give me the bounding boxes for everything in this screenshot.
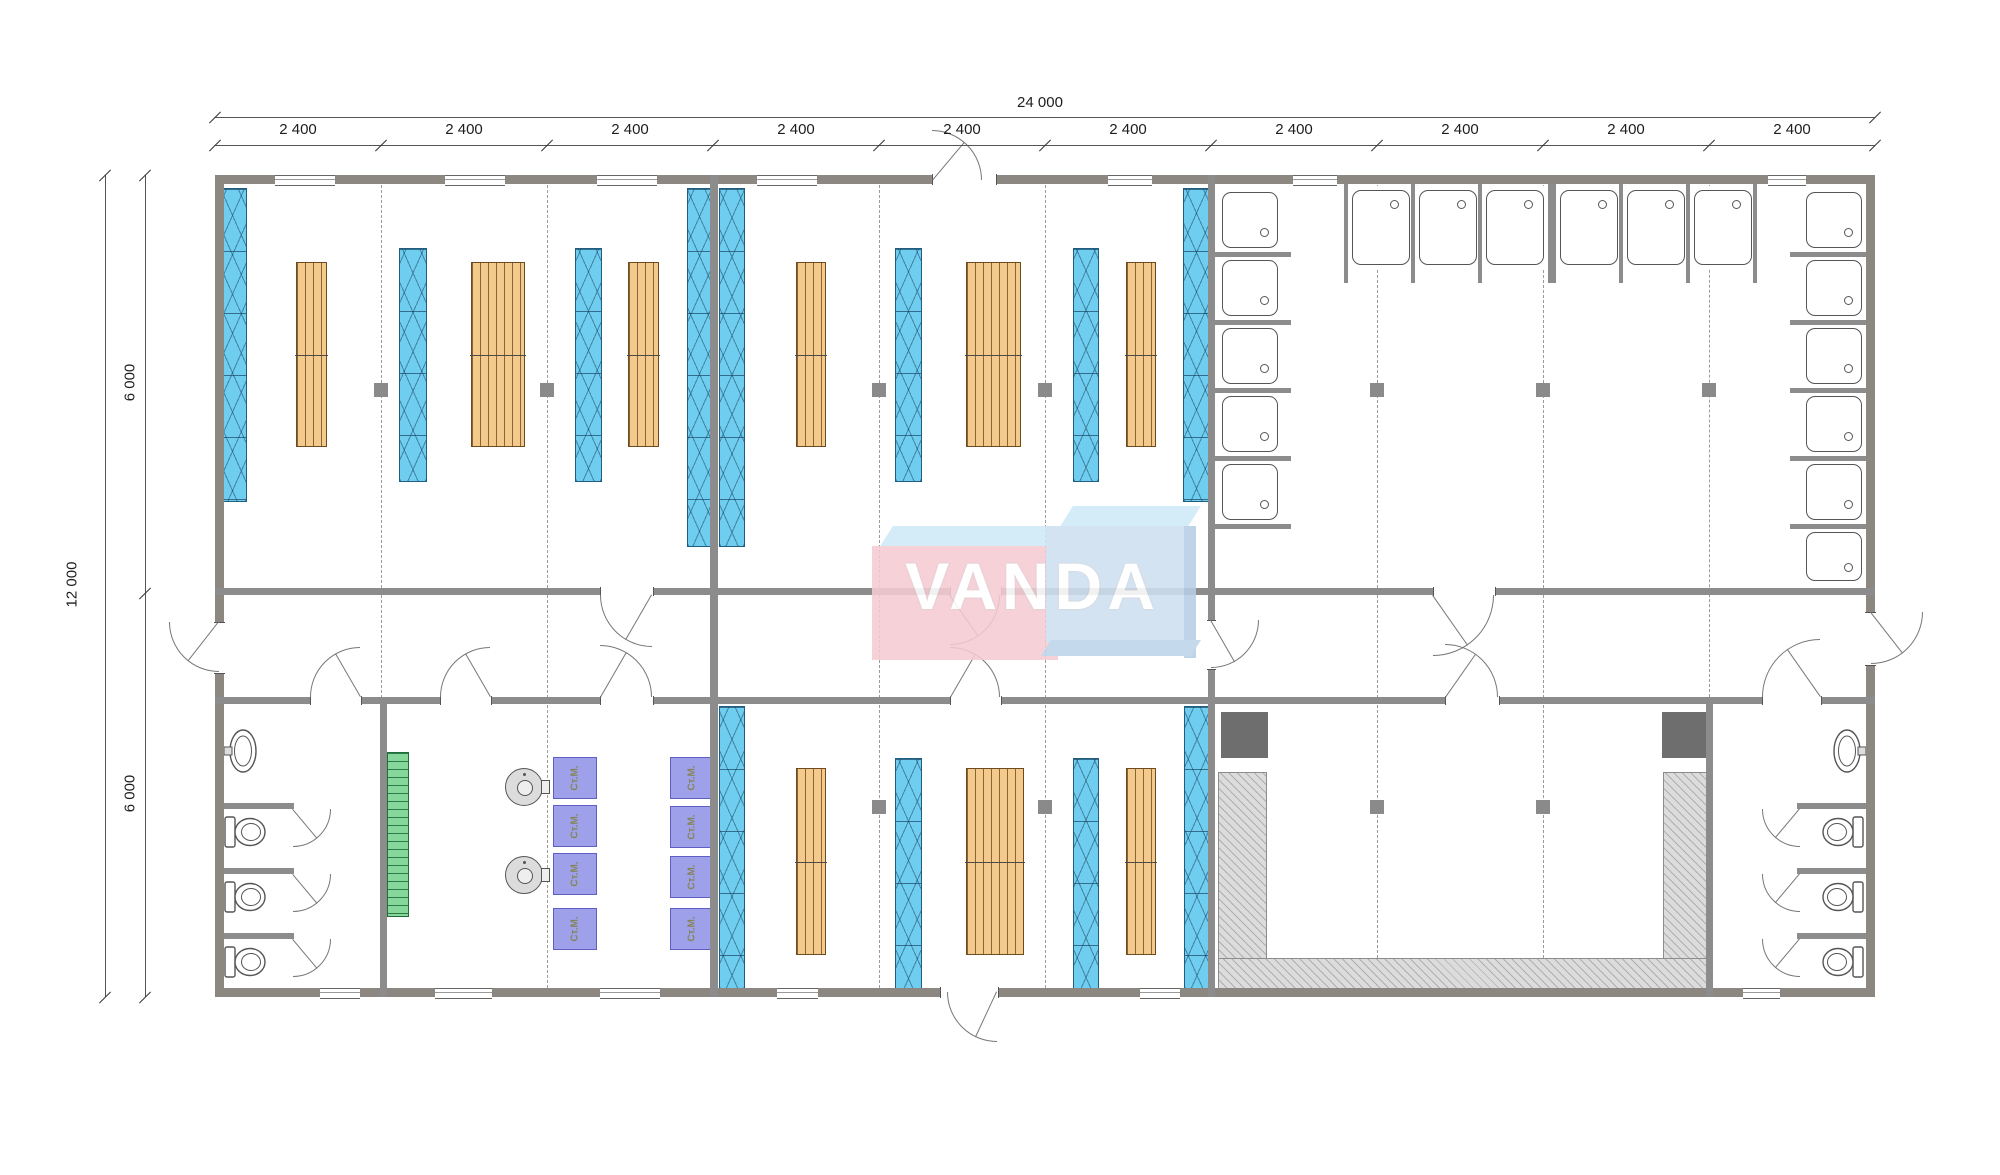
door-opening (600, 696, 654, 705)
door-swing (1762, 639, 1820, 697)
shower-partition (1548, 184, 1556, 283)
washing-machine: Ст.М. (553, 908, 597, 950)
toilet-icon (224, 812, 268, 852)
washing-machine: Ст.М. (670, 806, 714, 848)
sink-icon (224, 727, 258, 775)
shower-partition (1215, 388, 1291, 393)
serving-counter (1663, 772, 1710, 960)
toilet-icon (1820, 812, 1864, 852)
wall-interior (1706, 701, 1713, 997)
floor-plan: Ст.М. Ст.М. Ст.М. Ст.М. Ст.М. Ст.М. Ст.М… (0, 0, 2000, 1175)
column-marker (1536, 800, 1550, 814)
wall-panel (687, 188, 712, 547)
dimension-label: 2 400 (932, 121, 992, 138)
window-opening (275, 175, 335, 186)
dimension-label: 2 400 (1596, 121, 1656, 138)
dimension-label: 24 000 (980, 94, 1100, 111)
wall-panel (1183, 188, 1210, 502)
window-opening (320, 988, 360, 999)
dimension-line (215, 117, 1875, 118)
partition-screen (895, 758, 922, 992)
dimension-label: 2 400 (1762, 121, 1822, 138)
column-marker (540, 383, 554, 397)
shower-partition (1790, 320, 1866, 325)
dimension-label: 2 400 (1098, 121, 1158, 138)
washing-machine: Ст.М. (670, 908, 714, 950)
shower-stall (1802, 392, 1866, 456)
wall-panel (719, 706, 745, 990)
wall-interior (710, 175, 718, 997)
window-opening (597, 175, 657, 186)
shower-stall (1482, 186, 1548, 269)
partition-screen (1073, 248, 1099, 482)
door-swing (947, 992, 997, 1042)
toilet-icon (224, 877, 268, 917)
dimension-label: 2 400 (600, 121, 660, 138)
drying-rack (387, 752, 409, 917)
dimension-label: 6 000 (122, 353, 139, 413)
door-opening (1762, 696, 1822, 705)
window-opening (445, 175, 505, 186)
shower-partition (1619, 184, 1623, 283)
shower-partition (1411, 184, 1415, 283)
dimension-label: 2 400 (1430, 121, 1490, 138)
shower-stall (1556, 186, 1622, 269)
shower-partition (1686, 184, 1690, 283)
shower-stall (1802, 528, 1866, 585)
dimension-label: 2 400 (766, 121, 826, 138)
door-swing (1871, 612, 1923, 664)
bunk-rack (296, 262, 327, 447)
window-opening (1293, 175, 1337, 186)
washing-machine: Ст.М. (670, 856, 714, 898)
wall-interior (380, 701, 387, 997)
window-opening (600, 988, 660, 999)
logo-top-slab (1059, 506, 1201, 528)
shower-stall (1802, 460, 1866, 524)
shower-stall (1218, 324, 1282, 388)
bunk-rack (1126, 262, 1156, 447)
wc-partition (224, 933, 294, 939)
dimension-line (105, 175, 106, 997)
shower-stall (1218, 460, 1282, 524)
shower-stall (1348, 186, 1414, 269)
bunk-rack (1126, 768, 1156, 955)
vanda-logo: VANDA (860, 500, 1205, 670)
shower-partition (1215, 524, 1291, 529)
washing-machine: Ст.М. (553, 853, 597, 895)
bunk-rack (471, 262, 525, 447)
column-marker (374, 383, 388, 397)
column-marker (872, 383, 886, 397)
washing-machine: Ст.М. (553, 757, 597, 799)
window-opening (757, 175, 817, 186)
wall-interior (1208, 175, 1215, 997)
wc-partition (224, 803, 294, 809)
wc-partition (1797, 803, 1866, 809)
dimension-label: 2 400 (434, 121, 494, 138)
boiler-icon (505, 768, 543, 806)
wc-partition (224, 868, 294, 874)
boiler-valve (541, 868, 550, 882)
shower-partition (1215, 320, 1291, 325)
wall-exterior-left (215, 175, 224, 997)
washing-machine: Ст.М. (670, 757, 714, 799)
shower-partition (1790, 524, 1866, 529)
shower-stall (1690, 186, 1756, 269)
door-opening (310, 696, 362, 705)
toilet-icon (224, 942, 268, 982)
wc-partition (1797, 933, 1866, 939)
shower-stall (1218, 392, 1282, 456)
kitchen-unit (1662, 712, 1708, 758)
door-swing (293, 939, 331, 977)
column-marker (1370, 383, 1384, 397)
bunk-rack (966, 262, 1021, 447)
column-marker (1702, 383, 1716, 397)
serving-counter (1218, 772, 1267, 960)
door-swing (293, 809, 331, 847)
bunk-rack (796, 768, 826, 955)
washing-machine: Ст.М. (553, 805, 597, 847)
dimension-label: 2 400 (268, 121, 328, 138)
door-swing (293, 874, 331, 912)
door-opening (1445, 696, 1500, 705)
shower-stall (1802, 256, 1866, 320)
door-opening (950, 696, 1002, 705)
dimension-label: 2 400 (1264, 121, 1324, 138)
shower-stall (1415, 186, 1481, 269)
kitchen-unit (1221, 712, 1268, 758)
window-opening (777, 988, 818, 999)
sink-icon (1832, 727, 1866, 775)
window-opening (1768, 175, 1806, 186)
dimension-label: 12 000 (64, 555, 81, 615)
shower-partition (1790, 252, 1866, 257)
grid-line (1543, 175, 1544, 988)
wall-exterior-right (1866, 175, 1875, 997)
wall-panel (719, 188, 745, 547)
shower-partition (1215, 252, 1291, 257)
shower-stall (1623, 186, 1689, 269)
dimension-label: 6 000 (122, 764, 139, 824)
toilet-icon (1820, 877, 1864, 917)
grid-line (1377, 175, 1378, 988)
bunk-rack (966, 768, 1024, 955)
bunk-rack (628, 262, 659, 447)
shower-partition (1344, 184, 1348, 283)
window-opening (1140, 988, 1180, 999)
shower-stall (1802, 188, 1866, 252)
shower-partition (1753, 184, 1757, 283)
partition-screen (895, 248, 922, 482)
window-opening (1743, 988, 1780, 999)
column-marker (872, 800, 886, 814)
shower-stall (1218, 256, 1282, 320)
partition-screen (575, 248, 602, 482)
partition-screen (1073, 758, 1099, 992)
partition-screen (399, 248, 427, 482)
dimension-line (145, 175, 146, 997)
shower-partition (1790, 456, 1866, 461)
column-marker (1038, 800, 1052, 814)
wall-panel (1184, 706, 1210, 990)
column-marker (1536, 383, 1550, 397)
logo-text: VANDA (860, 548, 1205, 624)
shower-partition (1478, 184, 1482, 283)
window-opening (435, 988, 492, 999)
door-opening (440, 696, 492, 705)
logo-top-slab (879, 526, 1065, 548)
door-swing (1445, 644, 1498, 697)
wc-partition (1797, 868, 1866, 874)
bunk-rack (796, 262, 826, 447)
shower-partition (1790, 388, 1866, 393)
grid-line (547, 175, 548, 988)
serving-counter (1218, 958, 1710, 990)
window-opening (1108, 175, 1152, 186)
shower-partition (1215, 456, 1291, 461)
shower-stall (1802, 324, 1866, 388)
column-marker (1370, 800, 1384, 814)
column-marker (1038, 383, 1052, 397)
logo-edge (1041, 640, 1201, 656)
boiler-icon (505, 856, 543, 894)
boiler-valve (541, 780, 550, 794)
shower-stall (1218, 188, 1282, 252)
toilet-icon (1820, 942, 1864, 982)
